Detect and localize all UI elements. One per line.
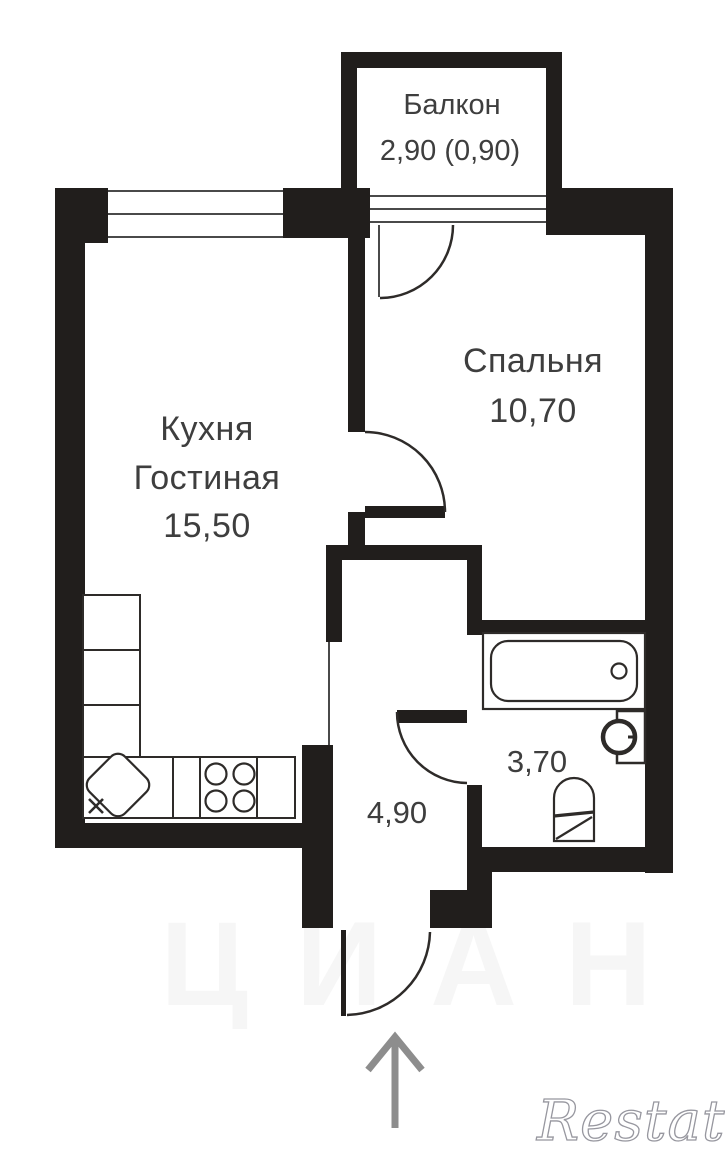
balcony-door-arc-icon bbox=[380, 225, 453, 298]
wall-hall-bottom-right bbox=[430, 890, 492, 928]
bedroom-area-label: 10,70 bbox=[489, 392, 577, 430]
walls bbox=[55, 52, 673, 1016]
wall-left bbox=[55, 188, 85, 848]
kitchen-window-icon bbox=[108, 191, 283, 237]
bathtub-icon bbox=[483, 633, 645, 709]
bedroom-door-leaf bbox=[365, 506, 445, 518]
wall-right bbox=[645, 213, 673, 873]
wall-kitchen-bedroom-partition bbox=[348, 235, 365, 432]
bedroom-door-arc-icon bbox=[365, 432, 445, 512]
balcony-area-label: 2,90 (0,90) bbox=[380, 135, 520, 167]
hallway-area-label: 4,90 bbox=[367, 795, 427, 830]
kitchen-name-line1-label: Кухня bbox=[160, 410, 254, 448]
bedroom-window-icon bbox=[370, 196, 546, 222]
wall-hall-top bbox=[326, 545, 480, 560]
wall-top-pier bbox=[283, 188, 370, 238]
kitchen-name-line2-label: Гостиная bbox=[134, 459, 281, 497]
wall-hall-left bbox=[302, 745, 333, 928]
brand-watermark-text: Restate bbox=[536, 1089, 725, 1153]
entrance-arrow-icon bbox=[368, 1037, 422, 1128]
balcony-name-label: Балкон bbox=[403, 89, 500, 121]
toilet-icon bbox=[554, 778, 594, 841]
bathroom-door-leaf bbox=[397, 710, 467, 723]
fixtures bbox=[83, 595, 645, 841]
wall-bathroom-bottom bbox=[467, 847, 673, 872]
floor-plan: ЦИАН bbox=[0, 0, 725, 1153]
kitchen-area-label: 15,50 bbox=[163, 507, 251, 545]
wall-kitchen-bottom bbox=[55, 823, 305, 848]
entrance-door-leaf bbox=[341, 930, 346, 1016]
bedroom-name-label: Спальня bbox=[463, 342, 603, 380]
wall-balcony-left bbox=[341, 52, 357, 190]
wall-balcony-right bbox=[546, 52, 562, 190]
wall-bathroom-left-lower bbox=[467, 785, 482, 848]
wall-balcony-top bbox=[341, 52, 562, 68]
bathroom-area-label: 3,70 bbox=[507, 744, 567, 779]
washbasin-icon bbox=[603, 711, 645, 763]
